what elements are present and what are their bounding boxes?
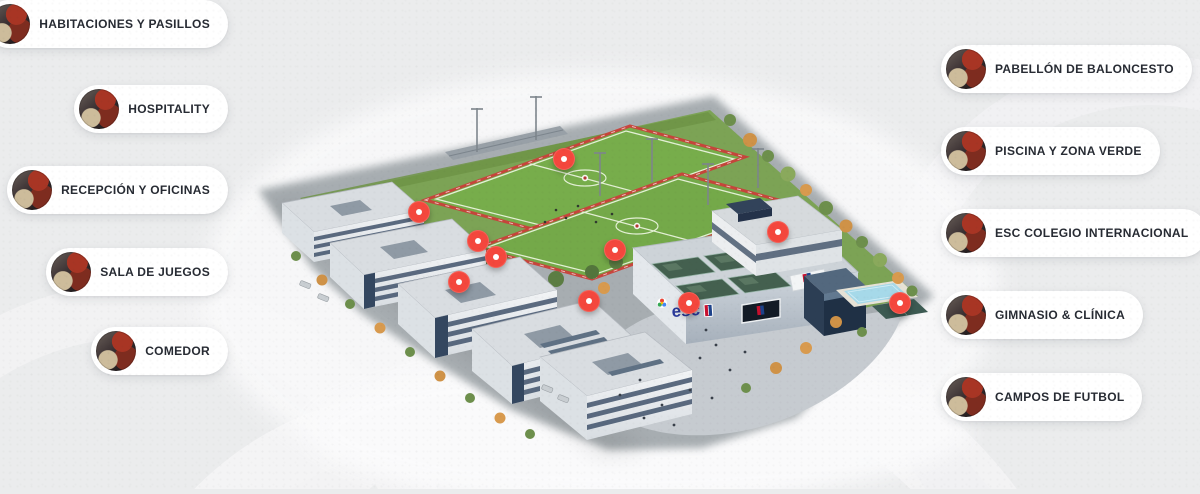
hotspot-label: PISCINA Y ZONA VERDE [995, 144, 1142, 158]
map-marker-2[interactable] [408, 201, 430, 223]
hotspot-label: COMEDOR [145, 344, 210, 358]
hotspot-label: CAMPOS DE FUTBOL [995, 390, 1124, 404]
marker-dot [456, 279, 462, 285]
marker-dot [416, 209, 422, 215]
map-marker-3[interactable] [467, 230, 489, 252]
map-marker-6[interactable] [604, 239, 626, 261]
hotspot-label: ESC COLEGIO INTERNACIONAL [995, 226, 1189, 240]
hotspot-pill-comedor[interactable]: COMEDOR [91, 327, 228, 375]
map-marker-1[interactable] [553, 148, 575, 170]
hotspot-pill-recepcion-y-oficinas[interactable]: RECEPCIÓN Y OFICINAS [7, 166, 228, 214]
hotspot-thumbnail-icon [51, 252, 91, 292]
hotspot-thumbnail-icon [946, 131, 986, 171]
map-marker-4[interactable] [485, 246, 507, 268]
hotspot-label: SALA DE JUEGOS [100, 265, 210, 279]
hotspot-label: PABELLÓN DE BALONCESTO [995, 62, 1174, 76]
hotspot-thumbnail-icon [946, 49, 986, 89]
marker-dot [475, 238, 481, 244]
hotspot-pill-piscina-y-zona-verde[interactable]: PISCINA Y ZONA VERDE [941, 127, 1160, 175]
hotspot-pill-hospitality[interactable]: HOSPITALITY [74, 85, 228, 133]
map-marker-9[interactable] [767, 221, 789, 243]
hotspot-pill-sala-de-juegos[interactable]: SALA DE JUEGOS [46, 248, 228, 296]
hotspot-pill-esc-colegio-internacional[interactable]: ESC COLEGIO INTERNACIONAL [941, 209, 1200, 257]
map-marker-10[interactable] [889, 292, 911, 314]
right-labels-column: PABELLÓN DE BALONCESTOPISCINA Y ZONA VER… [941, 45, 1200, 421]
hotspot-label: RECEPCIÓN Y OFICINAS [61, 183, 210, 197]
hotspot-pill-pabellon-de-baloncesto[interactable]: PABELLÓN DE BALONCESTO [941, 45, 1192, 93]
hotspot-thumbnail-icon [946, 213, 986, 253]
marker-dot [775, 229, 781, 235]
hotspot-pill-campos-de-futbol[interactable]: CAMPOS DE FUTBOL [941, 373, 1142, 421]
hotspot-label: HOSPITALITY [128, 102, 210, 116]
hotspot-thumbnail-icon [0, 4, 30, 44]
map-marker-5[interactable] [448, 271, 470, 293]
marker-dot [897, 300, 903, 306]
marker-dot [612, 247, 618, 253]
map-marker-7[interactable] [578, 290, 600, 312]
hotspot-pill-habitaciones-y-pasillos[interactable]: HABITACIONES Y PASILLOS [0, 0, 228, 48]
marker-dot [586, 298, 592, 304]
hotspot-pill-gimnasio-clinica[interactable]: GIMNASIO & CLÍNICA [941, 291, 1143, 339]
left-labels-column: HABITACIONES Y PASILLOSHOSPITALITYRECEPC… [0, 0, 228, 375]
hotspot-thumbnail-icon [96, 331, 136, 371]
marker-dot [493, 254, 499, 260]
hotspot-thumbnail-icon [12, 170, 52, 210]
hotspot-label: HABITACIONES Y PASILLOS [39, 17, 210, 31]
hotspot-label: GIMNASIO & CLÍNICA [995, 308, 1125, 322]
hotspot-thumbnail-icon [79, 89, 119, 129]
marker-dot [686, 300, 692, 306]
hotspot-thumbnail-icon [946, 377, 986, 417]
hotspot-thumbnail-icon [946, 295, 986, 335]
marker-dot [561, 156, 567, 162]
map-marker-8[interactable] [678, 292, 700, 314]
